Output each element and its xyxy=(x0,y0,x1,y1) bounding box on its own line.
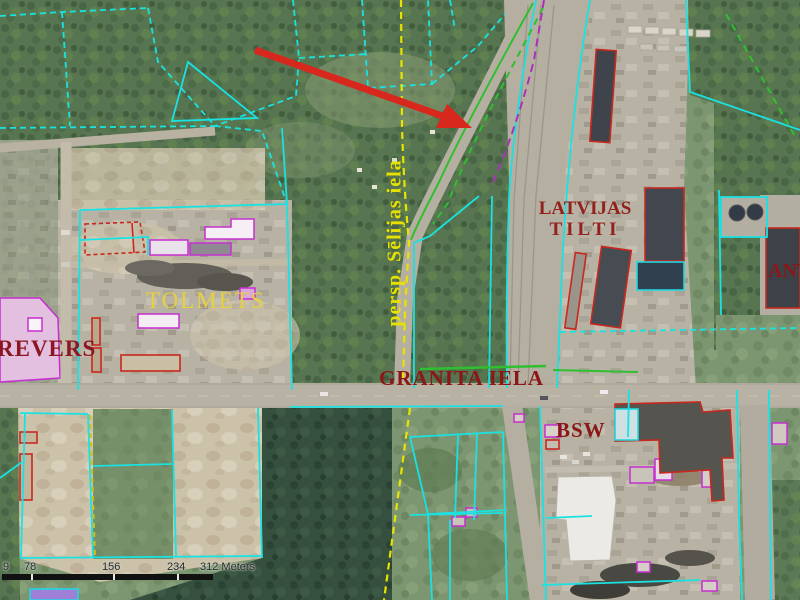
scale-bar: 9 78 156 234 312 Meters xyxy=(2,561,272,582)
map-canvas xyxy=(0,0,800,600)
scale-tick: 9 xyxy=(3,561,9,573)
scale-end-label: 312 Meters xyxy=(200,561,255,573)
map-viewport[interactable]: REVERS TOLMETS LATVIJAS TILTI GRANITA IE… xyxy=(0,0,800,600)
scale-tick: 156 xyxy=(102,561,120,573)
scale-tick: 234 xyxy=(167,561,185,573)
scale-tick: 78 xyxy=(24,561,36,573)
scale-bar-segments xyxy=(2,574,213,580)
